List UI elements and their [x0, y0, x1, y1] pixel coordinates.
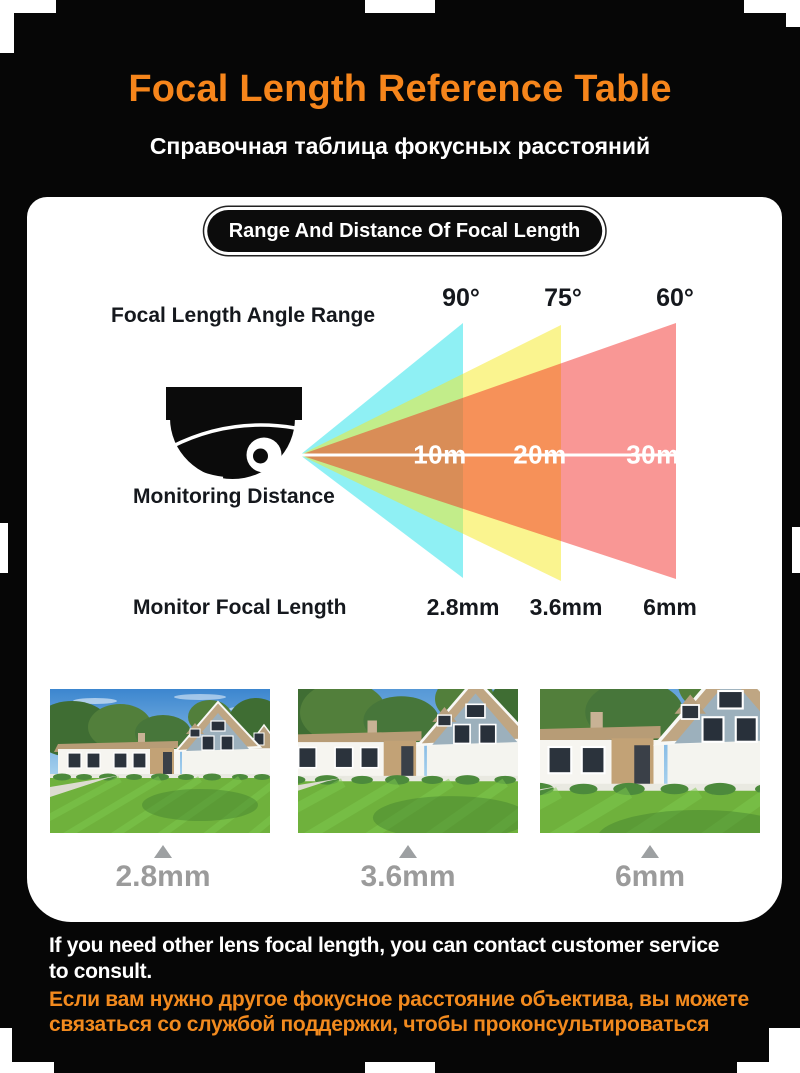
sample-photo-6mm: [540, 689, 760, 833]
film-notch: [786, 0, 800, 27]
footer-note-ru-line1: Если вам нужно другое фокусное расстояни…: [49, 987, 769, 1012]
page-subtitle: Справочная таблица фокусных расстояний: [0, 133, 800, 160]
photo-caption-3.6mm: 3.6mm: [360, 860, 455, 894]
film-notch: [365, 1062, 435, 1073]
angle-90: 90°: [442, 284, 480, 313]
monitor-focal-length-label: Monitor Focal Length: [133, 596, 346, 620]
focal-length-2.8mm: 2.8mm: [427, 594, 500, 621]
film-notch: [737, 1062, 800, 1073]
caption-arrow-icon: [154, 845, 172, 858]
distance-10m: 10m: [413, 440, 467, 471]
film-notch: [792, 527, 800, 573]
photo-caption-2.8mm: 2.8mm: [115, 860, 210, 894]
photo-caption-6mm: 6mm: [615, 860, 685, 894]
page-title: Focal Length Reference Table: [0, 68, 800, 111]
distance-30m: 30m: [626, 440, 680, 471]
distance-20m: 20m: [513, 440, 567, 471]
dome-camera-icon: [166, 387, 302, 479]
angle-range-label: Focal Length Angle Range: [111, 304, 375, 328]
monitoring-distance-label: Monitoring Distance: [133, 485, 335, 509]
caption-arrow-icon: [641, 845, 659, 858]
sample-photo-2.8mm: [50, 689, 270, 833]
sample-photo-3.6mm: [298, 689, 518, 833]
caption-arrow-icon: [399, 845, 417, 858]
footer-note-en-line1: If you need other lens focal length, you…: [49, 933, 769, 959]
reference-panel: Range And Distance Of Focal Length Focal…: [27, 197, 782, 922]
footer-note-en-line2: to consult.: [49, 959, 769, 985]
focal-length-3.6mm: 3.6mm: [530, 594, 603, 621]
footer-note-ru-line2: связаться со службой поддержки, чтобы пр…: [49, 1012, 769, 1037]
film-notch: [0, 0, 14, 53]
film-notch: [0, 523, 8, 573]
film-notch: [0, 1062, 54, 1073]
footer-note: If you need other lens focal length, you…: [49, 933, 769, 1037]
fov-cones: [300, 323, 676, 581]
angle-75: 75°: [544, 284, 582, 313]
film-notch: [365, 0, 435, 13]
focal-length-6mm: 6mm: [643, 594, 697, 621]
angle-60: 60°: [656, 284, 694, 313]
